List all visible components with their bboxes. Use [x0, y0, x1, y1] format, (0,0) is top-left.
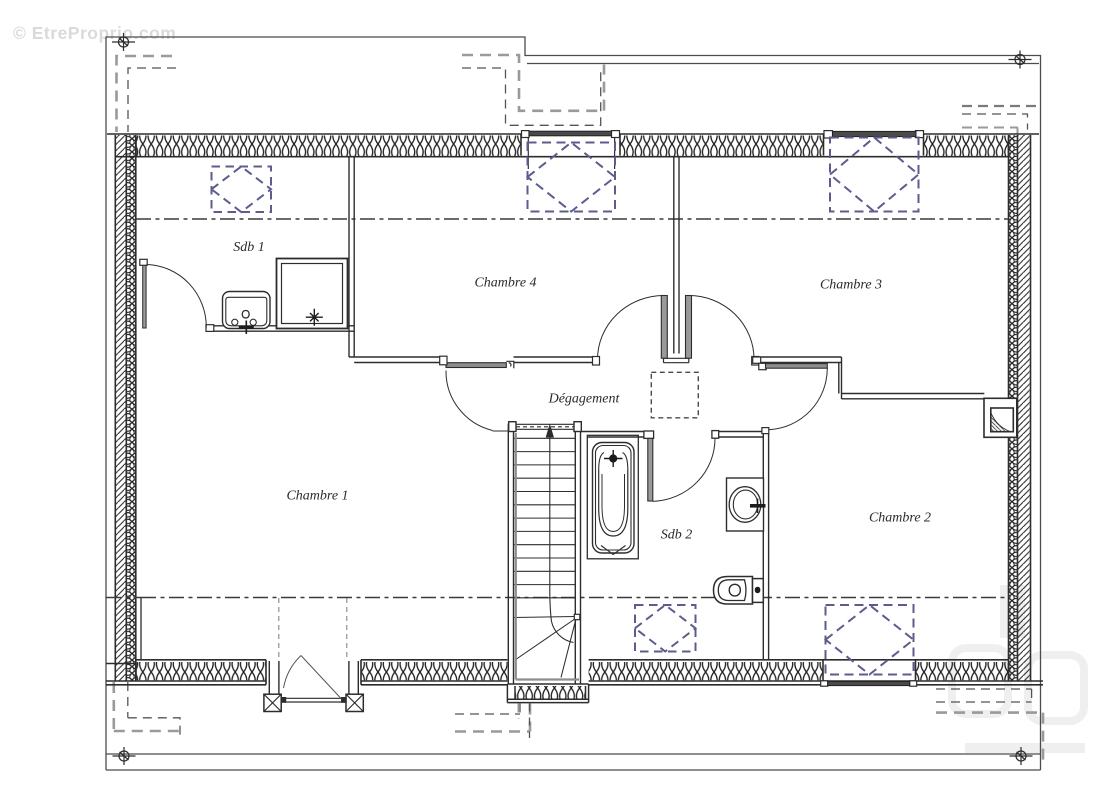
- svg-text:Sdb 1: Sdb 1: [233, 240, 265, 255]
- svg-text:Chambre 4: Chambre 4: [474, 276, 536, 291]
- svg-text:Dégagement: Dégagement: [548, 392, 621, 407]
- svg-text:Sdb 2: Sdb 2: [661, 528, 693, 543]
- svg-text:© EtreProprio.com: © EtreProprio.com: [13, 23, 176, 43]
- svg-text:Chambre 2: Chambre 2: [869, 511, 931, 526]
- svg-text:Chambre 1: Chambre 1: [286, 489, 348, 504]
- svg-text:Chambre 3: Chambre 3: [820, 278, 882, 293]
